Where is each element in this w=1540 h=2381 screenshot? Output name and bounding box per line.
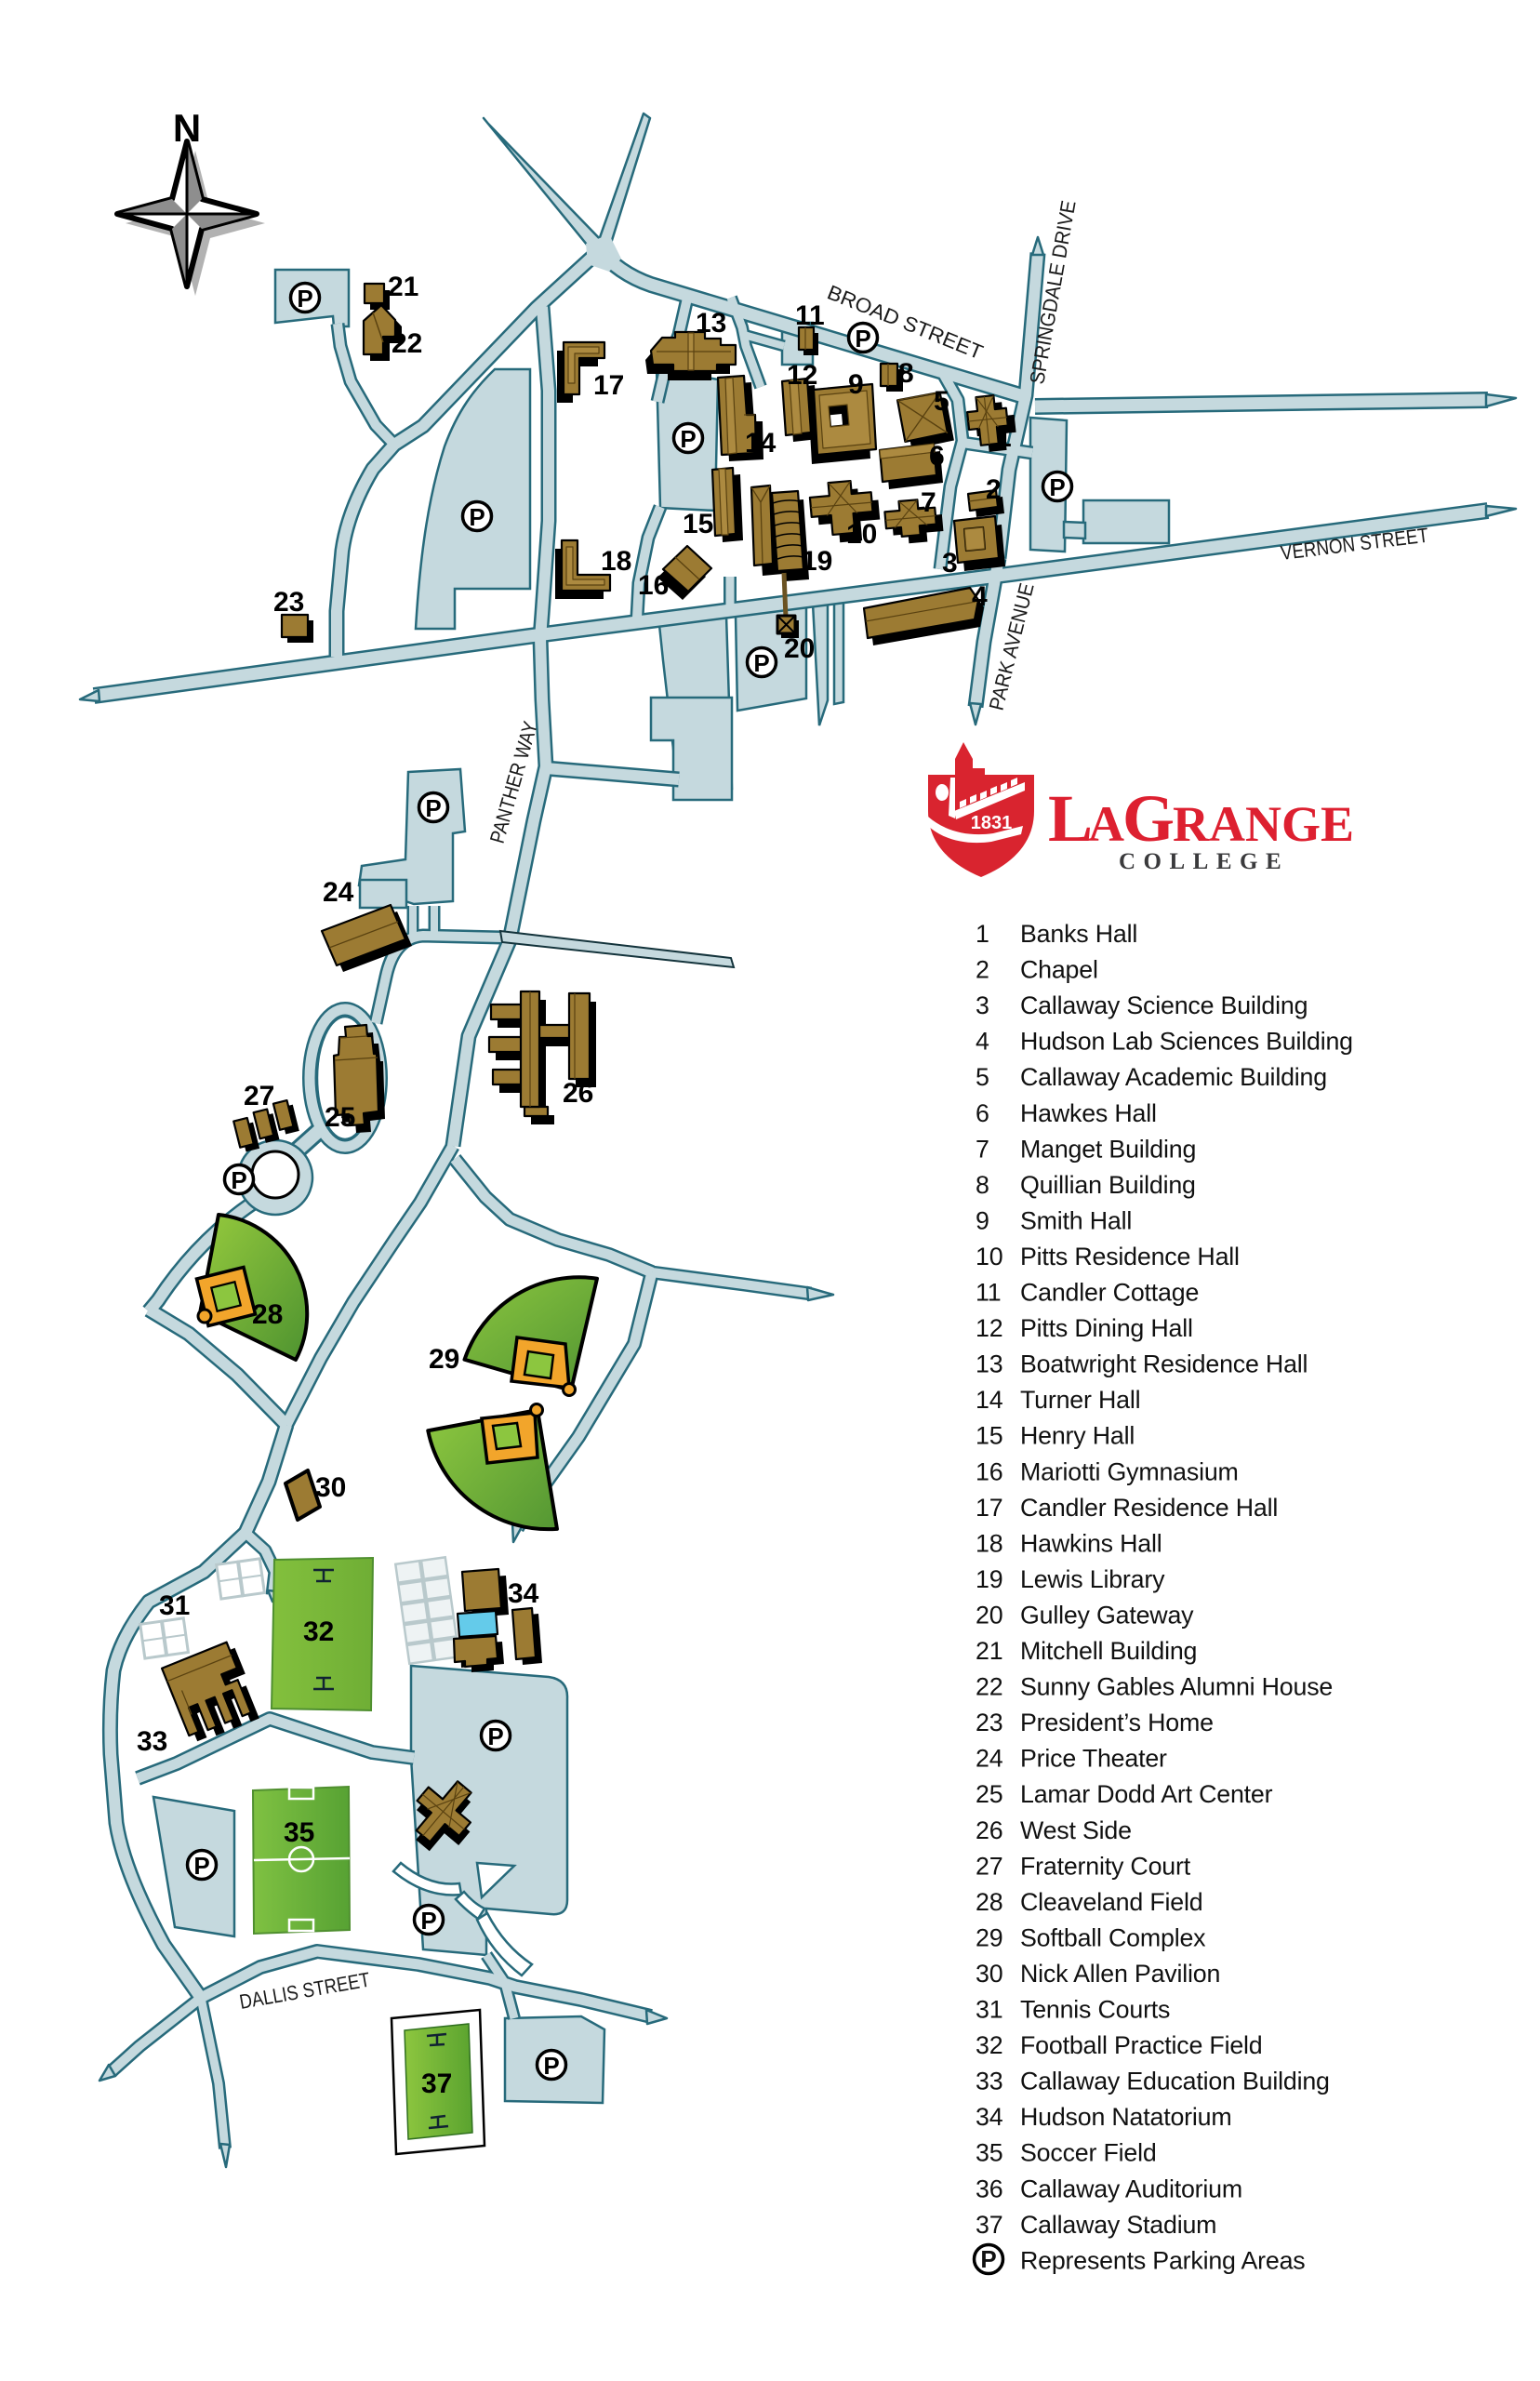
svg-text:29: 29 <box>976 1923 1002 1951</box>
svg-text:Callaway Science Building: Callaway Science Building <box>1020 991 1308 1019</box>
svg-text:25: 25 <box>976 1780 1002 1808</box>
svg-text:25: 25 <box>325 1102 355 1133</box>
svg-text:33: 33 <box>137 1726 167 1757</box>
svg-text:Hawkins Hall: Hawkins Hall <box>1020 1529 1162 1557</box>
svg-text:P: P <box>420 1907 436 1935</box>
svg-text:21: 21 <box>388 272 418 302</box>
svg-text:34: 34 <box>976 2103 1003 2131</box>
svg-text:Manget Building: Manget Building <box>1020 1135 1196 1163</box>
svg-text:4: 4 <box>976 1028 989 1056</box>
svg-text:P: P <box>1049 473 1065 501</box>
svg-text:19: 19 <box>976 1565 1002 1593</box>
svg-text:21: 21 <box>976 1637 1002 1665</box>
svg-text:7: 7 <box>976 1135 989 1163</box>
svg-text:P: P <box>753 649 769 677</box>
svg-text:Represents Parking Areas: Represents Parking Areas <box>1020 2246 1306 2274</box>
svg-text:20: 20 <box>784 633 815 664</box>
svg-text:COLLEGE: COLLEGE <box>1119 849 1289 874</box>
svg-text:Lamar Dodd Art Center: Lamar Dodd Art Center <box>1020 1780 1273 1808</box>
svg-text:32: 32 <box>976 2031 1002 2059</box>
svg-text:Hudson Lab Sciences Building: Hudson Lab Sciences Building <box>1020 1028 1353 1056</box>
svg-text:17: 17 <box>976 1494 1002 1522</box>
svg-text:12: 12 <box>976 1314 1002 1342</box>
svg-text:24: 24 <box>976 1745 1003 1773</box>
svg-text:22: 22 <box>976 1673 1002 1701</box>
svg-text:Soccer Field: Soccer Field <box>1020 2139 1157 2167</box>
svg-text:Quillian Building: Quillian Building <box>1020 1171 1196 1199</box>
svg-text:West Side: West Side <box>1020 1816 1132 1844</box>
svg-text:31: 31 <box>159 1590 190 1621</box>
svg-text:36: 36 <box>976 2175 1002 2202</box>
svg-text:Hawkes Hall: Hawkes Hall <box>1020 1099 1157 1127</box>
svg-text:31: 31 <box>976 1996 1002 2024</box>
svg-text:Chapel: Chapel <box>1020 956 1098 984</box>
svg-text:28: 28 <box>976 1888 1002 1916</box>
svg-text:Fraternity Court: Fraternity Court <box>1020 1852 1191 1880</box>
svg-text:30: 30 <box>315 1472 346 1503</box>
svg-text:8: 8 <box>976 1171 989 1199</box>
svg-text:26: 26 <box>976 1816 1002 1844</box>
svg-text:Candler Residence Hall: Candler Residence Hall <box>1020 1494 1278 1522</box>
svg-text:22: 22 <box>392 328 422 359</box>
svg-text:26: 26 <box>563 1078 593 1109</box>
svg-text:6: 6 <box>929 441 945 472</box>
svg-text:23: 23 <box>273 587 304 618</box>
svg-text:Nick Allen Pavilion: Nick Allen Pavilion <box>1020 1960 1220 1988</box>
svg-text:1: 1 <box>996 422 1012 453</box>
svg-text:P: P <box>487 1723 503 1750</box>
svg-text:35: 35 <box>284 1817 314 1848</box>
svg-text:Softball Complex: Softball Complex <box>1020 1923 1206 1951</box>
svg-text:Price Theater: Price Theater <box>1020 1745 1167 1773</box>
svg-text:Lewis Library: Lewis Library <box>1020 1565 1165 1593</box>
svg-text:17: 17 <box>593 370 624 401</box>
svg-text:16: 16 <box>976 1457 1002 1485</box>
svg-text:9: 9 <box>848 369 864 400</box>
svg-text:Banks Hall: Banks Hall <box>1020 920 1137 948</box>
svg-text:4: 4 <box>972 581 988 612</box>
svg-text:23: 23 <box>976 1709 1002 1736</box>
svg-text:5: 5 <box>976 1063 989 1091</box>
svg-text:14: 14 <box>745 428 777 459</box>
svg-text:Henry Hall: Henry Hall <box>1020 1422 1135 1450</box>
svg-text:24: 24 <box>323 877 354 908</box>
svg-text:President’s Home: President’s Home <box>1020 1709 1214 1736</box>
svg-text:34: 34 <box>508 1578 539 1609</box>
svg-text:18: 18 <box>976 1529 1002 1557</box>
svg-text:33: 33 <box>976 2068 1002 2095</box>
svg-text:12: 12 <box>787 360 817 391</box>
svg-text:6: 6 <box>976 1099 989 1127</box>
svg-text:P: P <box>297 285 312 313</box>
svg-text:27: 27 <box>244 1081 274 1111</box>
svg-text:P: P <box>855 325 870 352</box>
svg-text:Cleaveland Field: Cleaveland Field <box>1020 1888 1202 1916</box>
svg-text:35: 35 <box>976 2139 1002 2167</box>
svg-text:29: 29 <box>429 1344 459 1375</box>
svg-text:10: 10 <box>976 1243 1002 1270</box>
svg-text:2: 2 <box>986 474 1002 505</box>
svg-text:Mariotti Gymnasium: Mariotti Gymnasium <box>1020 1457 1239 1485</box>
svg-text:Callaway Academic Building: Callaway Academic Building <box>1020 1063 1327 1091</box>
svg-text:13: 13 <box>976 1350 1002 1378</box>
svg-text:11: 11 <box>976 1279 1001 1307</box>
svg-text:2: 2 <box>976 956 989 984</box>
svg-text:P: P <box>980 2245 996 2273</box>
svg-text:P: P <box>425 794 441 822</box>
svg-text:13: 13 <box>696 308 726 339</box>
svg-text:Pitts Dining Hall: Pitts Dining Hall <box>1020 1314 1193 1342</box>
svg-text:Football Practice Field: Football Practice Field <box>1020 2031 1263 2059</box>
svg-text:Mitchell Building: Mitchell Building <box>1020 1637 1197 1665</box>
svg-text:20: 20 <box>976 1602 1002 1629</box>
svg-text:18: 18 <box>601 546 631 577</box>
svg-text:15: 15 <box>976 1422 1002 1450</box>
svg-text:Hudson Natatorium: Hudson Natatorium <box>1020 2103 1231 2131</box>
svg-text:37: 37 <box>421 2068 452 2099</box>
svg-text:30: 30 <box>976 1960 1002 1988</box>
svg-text:1831: 1831 <box>971 813 1013 833</box>
svg-text:P: P <box>543 2052 559 2080</box>
svg-text:15: 15 <box>683 509 713 539</box>
svg-text:Tennis Courts: Tennis Courts <box>1020 1996 1170 2024</box>
svg-text:28: 28 <box>252 1299 283 1330</box>
svg-text:Turner Hall: Turner Hall <box>1020 1386 1140 1414</box>
svg-text:7: 7 <box>921 487 936 518</box>
svg-text:14: 14 <box>976 1386 1003 1414</box>
svg-text:Boatwright Residence Hall: Boatwright Residence Hall <box>1020 1350 1308 1378</box>
svg-text:P: P <box>193 1852 209 1880</box>
svg-text:9: 9 <box>976 1206 989 1234</box>
svg-text:Smith Hall: Smith Hall <box>1020 1206 1132 1234</box>
svg-text:Callaway Stadium: Callaway Stadium <box>1020 2211 1216 2239</box>
svg-text:P: P <box>680 425 696 453</box>
svg-text:Gulley Gateway: Gulley Gateway <box>1020 1602 1194 1629</box>
svg-text:3: 3 <box>976 991 989 1019</box>
svg-text:10: 10 <box>846 519 877 550</box>
svg-text:37: 37 <box>976 2211 1002 2239</box>
svg-text:8: 8 <box>898 358 914 389</box>
svg-text:Candler Cottage: Candler Cottage <box>1020 1279 1199 1307</box>
svg-text:5: 5 <box>934 386 949 417</box>
svg-text:P: P <box>469 503 485 531</box>
svg-text:1: 1 <box>976 920 989 948</box>
svg-text:32: 32 <box>303 1616 334 1647</box>
svg-text:16: 16 <box>638 570 669 601</box>
svg-text:19: 19 <box>802 546 832 577</box>
svg-text:11: 11 <box>795 300 825 331</box>
svg-text:Callaway Auditorium: Callaway Auditorium <box>1020 2175 1242 2202</box>
svg-text:N: N <box>173 106 201 150</box>
svg-text:3: 3 <box>942 548 958 579</box>
svg-text:Callaway Education Building: Callaway Education Building <box>1020 2068 1330 2095</box>
svg-text:Pitts Residence Hall: Pitts Residence Hall <box>1020 1243 1240 1270</box>
svg-text:27: 27 <box>976 1852 1002 1880</box>
svg-text:P: P <box>231 1166 246 1194</box>
svg-text:Sunny Gables Alumni House: Sunny Gables Alumni House <box>1020 1673 1333 1701</box>
